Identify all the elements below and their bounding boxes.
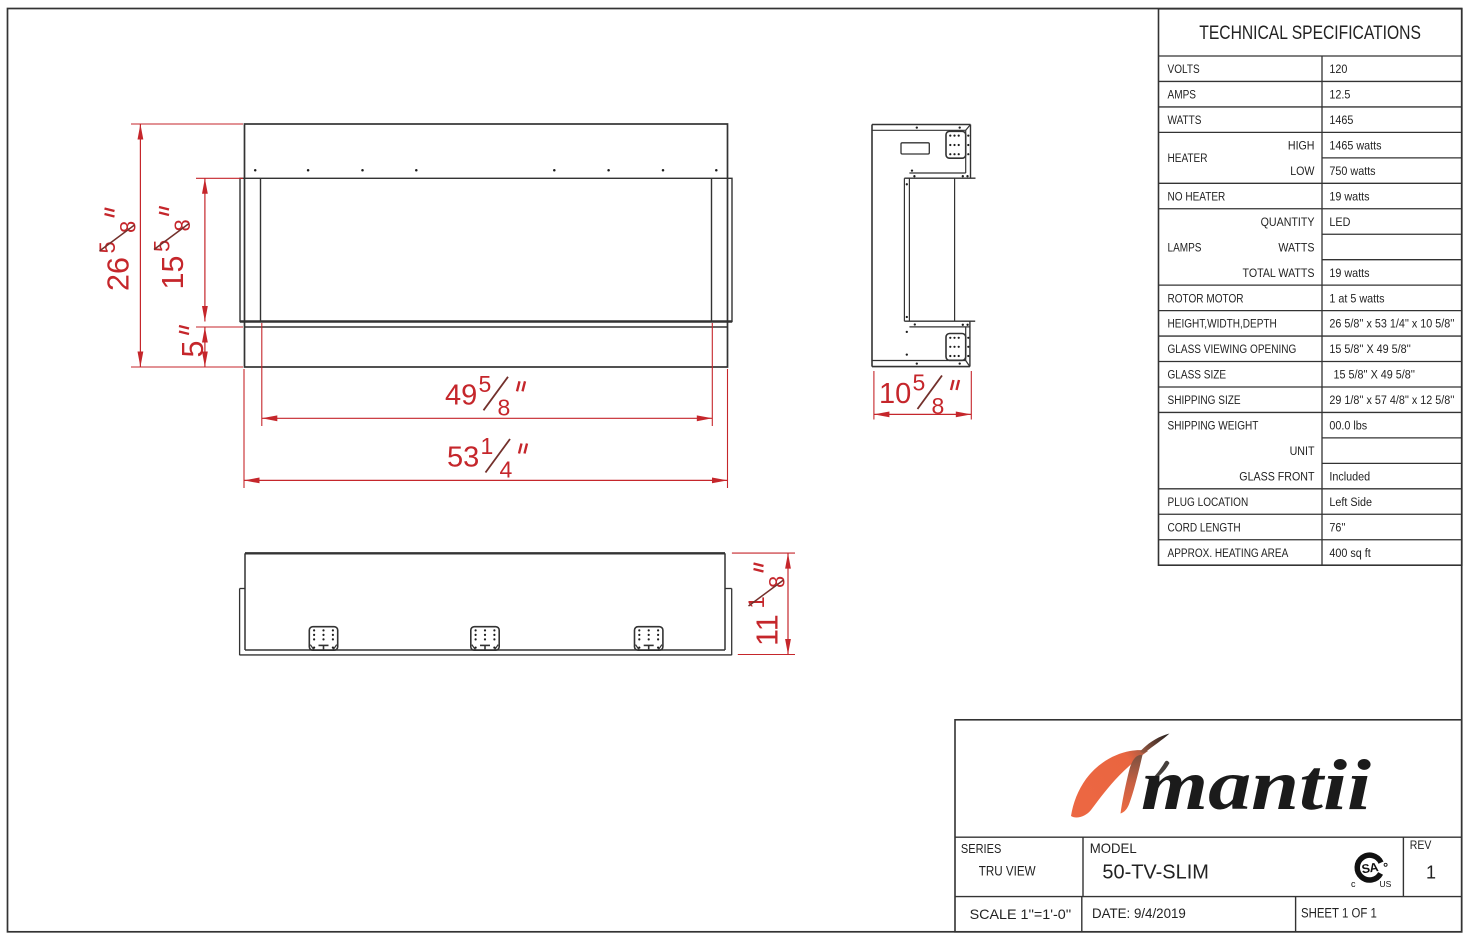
- svg-text:NO HEATER: NO HEATER: [1168, 189, 1226, 203]
- svg-text:10: 10: [879, 378, 911, 410]
- svg-text:DATE: 9/4/2019: DATE: 9/4/2019: [1092, 905, 1186, 921]
- svg-text:1465 watts: 1465 watts: [1329, 139, 1381, 153]
- svg-text:LOW: LOW: [1290, 164, 1315, 178]
- svg-text:5: 5: [479, 371, 492, 397]
- svg-text:15: 15: [156, 256, 190, 290]
- svg-text:SHIPPING SIZE: SHIPPING SIZE: [1168, 393, 1241, 407]
- svg-text:HEIGHT,WIDTH,DEPTH: HEIGHT,WIDTH,DEPTH: [1168, 317, 1277, 331]
- svg-text:49: 49: [445, 379, 477, 411]
- svg-text:WATTS: WATTS: [1278, 240, 1314, 254]
- svg-text:MODEL: MODEL: [1090, 840, 1137, 856]
- svg-text:SCALE 1''=1'-0'': SCALE 1''=1'-0'': [970, 906, 1072, 922]
- svg-text:QUANTITY: QUANTITY: [1261, 215, 1315, 229]
- svg-text:LED: LED: [1329, 215, 1350, 229]
- svg-text:ROTOR MOTOR: ROTOR MOTOR: [1168, 291, 1244, 305]
- svg-text:Left Side: Left Side: [1329, 495, 1372, 509]
- svg-text:400 sq ft: 400 sq ft: [1329, 546, 1371, 560]
- svg-text:76'': 76'': [1329, 520, 1345, 534]
- svg-text:c: c: [1351, 879, 1356, 889]
- svg-text:SA: SA: [1361, 860, 1380, 876]
- svg-text:1: 1: [1426, 862, 1436, 882]
- svg-text:TOTAL WATTS: TOTAL WATTS: [1243, 266, 1315, 280]
- svg-text:1: 1: [744, 596, 769, 608]
- svg-text:15 5/8'' X 49 5/8'': 15 5/8'' X 49 5/8'': [1334, 368, 1415, 382]
- svg-text:4: 4: [500, 457, 513, 483]
- svg-text:SHIPPING WEIGHT: SHIPPING WEIGHT: [1168, 419, 1259, 433]
- svg-text:26 5/8'' x 53 1/4'' x 10 5/8'': 26 5/8'' x 53 1/4'' x 10 5/8'': [1329, 317, 1454, 331]
- svg-text:00.0 lbs: 00.0 lbs: [1329, 419, 1367, 433]
- svg-text:15 5/8'' X 49 5/8'': 15 5/8'' X 49 5/8'': [1329, 342, 1410, 356]
- svg-text:GLASS FRONT: GLASS FRONT: [1239, 469, 1315, 483]
- svg-text:5: 5: [95, 241, 120, 253]
- svg-text:750 watts: 750 watts: [1329, 164, 1375, 178]
- svg-text:1: 1: [481, 433, 494, 459]
- svg-text:UNIT: UNIT: [1290, 444, 1315, 458]
- svg-text:11: 11: [751, 614, 785, 646]
- svg-text:mantii: mantii: [1141, 745, 1371, 825]
- svg-text:5: 5: [913, 370, 926, 396]
- svg-text:19 watts: 19 watts: [1329, 189, 1369, 203]
- svg-text:GLASS SIZE: GLASS SIZE: [1168, 368, 1227, 382]
- svg-text:1 at 5 watts: 1 at 5 watts: [1329, 291, 1384, 305]
- svg-text:1465: 1465: [1329, 113, 1353, 127]
- svg-text:53: 53: [447, 442, 479, 474]
- svg-text:REV: REV: [1410, 838, 1432, 852]
- svg-text:120: 120: [1329, 62, 1347, 76]
- svg-text:26: 26: [102, 257, 136, 291]
- svg-text:VOLTS: VOLTS: [1168, 62, 1200, 76]
- svg-text:CORD LENGTH: CORD LENGTH: [1168, 520, 1241, 534]
- svg-text:8: 8: [932, 393, 945, 419]
- svg-text:8: 8: [498, 394, 511, 420]
- svg-text:8: 8: [116, 221, 141, 233]
- svg-text:50-TV-SLIM: 50-TV-SLIM: [1102, 861, 1209, 884]
- svg-text:8: 8: [170, 219, 195, 231]
- svg-text:GLASS VIEWING OPENING: GLASS VIEWING OPENING: [1168, 342, 1297, 356]
- svg-text:5: 5: [150, 240, 175, 252]
- svg-text:US: US: [1380, 879, 1392, 889]
- svg-text:19 watts: 19 watts: [1329, 266, 1369, 280]
- svg-text:WATTS: WATTS: [1168, 113, 1202, 127]
- svg-text:TECHNICAL SPECIFICATIONS: TECHNICAL SPECIFICATIONS: [1199, 23, 1421, 44]
- svg-text:PLUG LOCATION: PLUG LOCATION: [1168, 495, 1249, 509]
- svg-text:SHEET 1 OF 1: SHEET 1 OF 1: [1301, 906, 1377, 921]
- svg-text:TRU VIEW: TRU VIEW: [979, 864, 1036, 879]
- svg-text:Included: Included: [1329, 469, 1370, 483]
- svg-text:12.5: 12.5: [1329, 88, 1350, 102]
- svg-text:29 1/8'' x 57 4/8'' x 12 5/8'': 29 1/8'' x 57 4/8'' x 12 5/8'': [1329, 393, 1454, 407]
- svg-text:SERIES: SERIES: [961, 841, 1002, 856]
- svg-text:5: 5: [176, 341, 210, 358]
- svg-text:APPROX. HEATING AREA: APPROX. HEATING AREA: [1168, 546, 1289, 560]
- svg-text:HEATER: HEATER: [1168, 151, 1208, 165]
- svg-text:8: 8: [765, 576, 790, 588]
- svg-text:LAMPS: LAMPS: [1168, 240, 1202, 254]
- svg-text:AMPS: AMPS: [1168, 88, 1197, 102]
- svg-text:HIGH: HIGH: [1288, 139, 1315, 153]
